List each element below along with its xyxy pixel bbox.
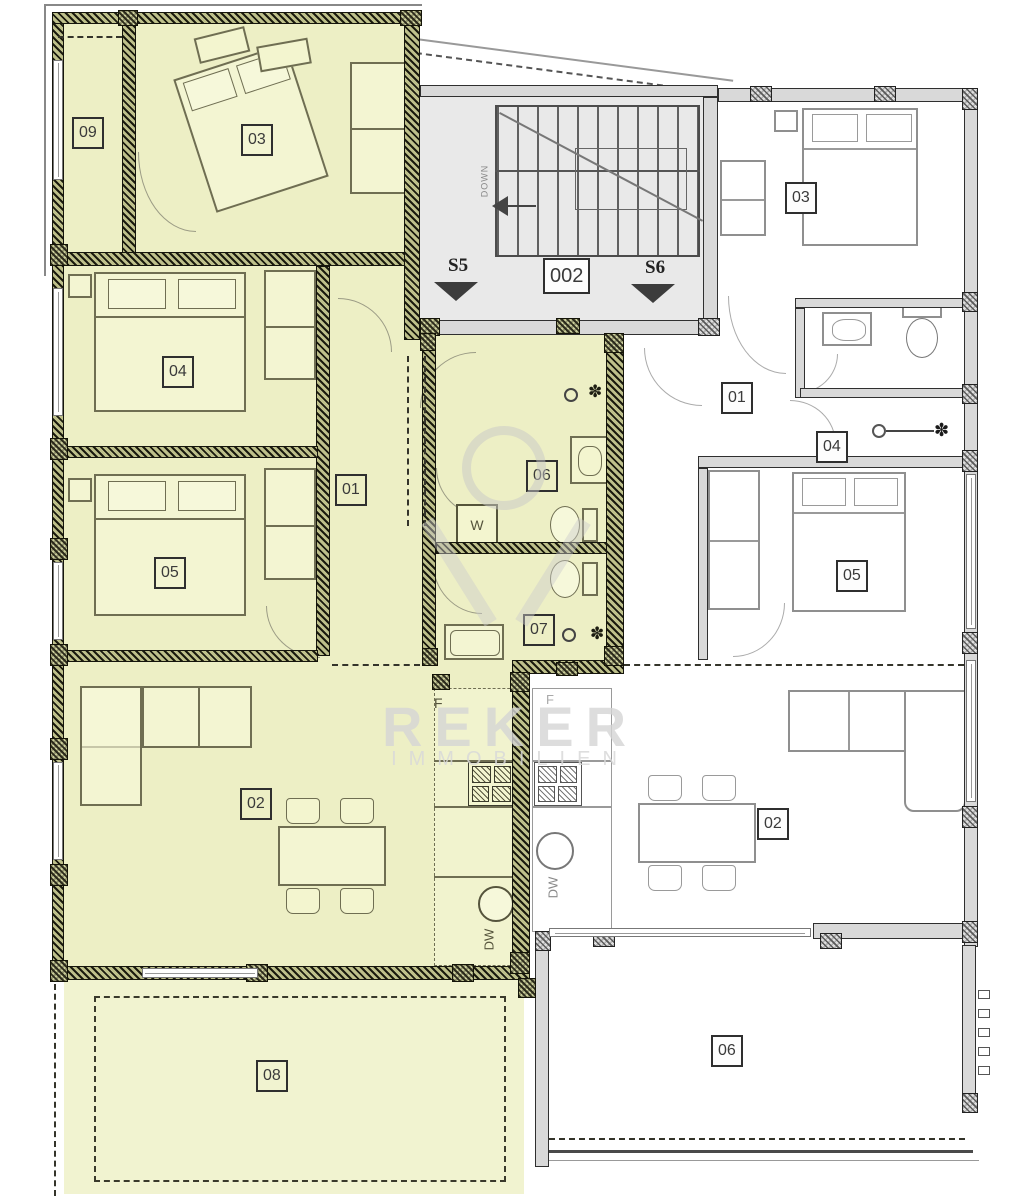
chair [286,888,320,914]
wall-pier [50,538,68,560]
wall-pier [962,1093,978,1113]
wall [606,335,624,667]
terrace-edge-line [549,1150,973,1153]
room-label-right-05: 05 [836,560,868,592]
wall-pier [118,10,138,26]
wardrobe [350,62,412,194]
toilet [550,506,580,544]
stair-down-arrow [492,196,508,216]
shower-head-icon [872,424,886,438]
railing-post [978,1066,990,1075]
dashed-line [424,356,426,526]
wardrobe [708,470,760,610]
window [53,60,63,180]
wall [436,542,612,554]
wall [535,933,549,1167]
wall [795,298,965,308]
dashed-line [58,36,122,38]
plant-icon: ✽ [934,420,949,441]
sofa-chaise [80,686,142,806]
dishwasher-label: DW [545,877,560,899]
wall-pier [432,674,450,690]
railing-post [978,1047,990,1056]
room-label-left-02: 02 [240,788,272,820]
room-label-left-04: 04 [162,356,194,388]
stair-s6-arrow-icon [631,284,675,303]
window [966,660,976,802]
wall [52,12,420,24]
chair [702,775,736,801]
wall-pier [50,438,68,460]
wall-pier [962,88,978,110]
plant-icon: ✽ [590,624,604,644]
terrace-dashed-rect [94,996,506,1182]
wall [795,308,805,398]
room-label-left-07: 07 [523,614,555,646]
kitchen-sink [536,832,574,870]
wall [800,388,965,398]
plant-icon: ✽ [588,382,602,402]
wall-pier [50,244,68,266]
floor-plan: DOWN S5 S6 002 [0,0,1022,1200]
facade-line-left [44,4,46,276]
wall-pier [518,978,536,998]
railing-post [978,1009,990,1018]
wall [52,252,420,266]
wall-pier [962,921,978,943]
dining-table [638,803,756,863]
stair-down-arrow-line [508,205,536,207]
dashed-line [624,664,964,666]
wall-pier [556,662,578,676]
dishwasher-label: DW [481,929,496,951]
wall-pier [50,644,68,666]
wall-pier [452,964,474,982]
wall-pier [604,333,624,353]
nightstand [774,110,798,132]
toilet-tank [582,562,598,596]
dashed-line [407,356,409,526]
wall-pier [604,646,624,666]
dashed-line [332,664,420,666]
toilet-tank [582,508,598,542]
fridge-label: F [546,692,554,707]
wall [420,85,718,97]
wall-pier [874,86,896,102]
kitchen-counter [532,688,612,932]
wall-pier [510,672,530,692]
wall-pier [556,318,580,334]
stair-handrail [575,148,687,210]
toilet [906,318,938,358]
wall-pier [50,960,68,982]
chair [648,865,682,891]
wall-pier [400,10,422,26]
wall-pier [962,292,978,312]
window [142,968,258,978]
room-label-left-08: 08 [256,1060,288,1092]
room-label-right-02: 02 [757,808,789,840]
room-label-right-04: 04 [816,431,848,463]
room-label-right-03: 03 [785,182,817,214]
wardrobe [264,468,316,580]
room-label-left-06: 06 [526,460,558,492]
nightstand [68,478,92,502]
bathroom-sink [822,312,872,346]
shower-head-icon [562,628,576,642]
bathtub [444,624,504,660]
room-label-left-09: 09 [72,117,104,149]
dining-table [278,826,386,886]
wall [512,674,530,974]
kitchen-counter [434,688,520,966]
wall [122,24,136,258]
wall-pier [698,318,720,336]
kitchen-divider [532,806,612,808]
room-label-left-05: 05 [154,557,186,589]
stair-s5-label: S5 [448,255,468,277]
stair-unit-label: 002 [543,258,590,294]
shower-hose-line [886,430,934,432]
stove [534,762,582,806]
wall-pier [422,648,438,666]
terrace-edge-line-thin [549,1160,979,1161]
wall-pier [962,384,978,404]
dashed-line [549,1138,965,1140]
wall-pier [750,86,772,102]
stair-s5-arrow-icon [434,282,478,301]
wall-pier [820,933,842,949]
nightstand [68,274,92,298]
wall [52,446,318,458]
bed [802,108,918,246]
wall-pier [50,864,68,886]
room-label-left-03: 03 [241,124,273,156]
wall-pier [962,806,978,828]
sliding-door [549,928,811,937]
window [53,762,63,860]
wall-pier [420,333,436,351]
railing-post [978,990,990,999]
wall [316,266,330,656]
sofa-chaise [904,690,966,812]
railing-post [978,1028,990,1037]
kitchen-sink [478,886,514,922]
bed [94,474,246,616]
washing-machine-label: W [470,517,483,533]
wall-pier [962,632,978,654]
bed [94,272,246,412]
window [53,288,63,416]
room-label-right-06: 06 [711,1035,743,1067]
door-arc [644,348,702,406]
stair-s6-label: S6 [645,257,665,279]
wall [404,24,420,340]
terrace-dashed-line [54,984,56,1196]
bathroom-sink [570,436,608,484]
chair [340,798,374,824]
room-label-left-01: 01 [335,474,367,506]
wall-pier [962,450,978,472]
window [53,562,63,640]
door-arc [728,296,786,374]
room-label-right-01: 01 [721,382,753,414]
stair-down-label: DOWN [479,165,489,198]
kitchen-divider [434,806,520,808]
chair [340,888,374,914]
wall-pier [510,952,530,974]
chair [702,865,736,891]
wall [698,468,708,660]
wall [962,945,976,1107]
wall [703,97,718,320]
wall-pier [50,738,68,760]
wardrobe [264,270,316,380]
fridge-label: F [434,695,443,711]
window [966,474,976,629]
toilet [550,560,580,598]
wardrobe [720,160,766,236]
chair [648,775,682,801]
stove [468,762,516,806]
facade-line-top [44,4,422,6]
shower-head-icon [564,388,578,402]
wall [52,650,318,662]
kitchen-divider [434,876,520,878]
washing-machine: W [456,504,498,546]
chair [286,798,320,824]
door-arc [733,603,785,657]
